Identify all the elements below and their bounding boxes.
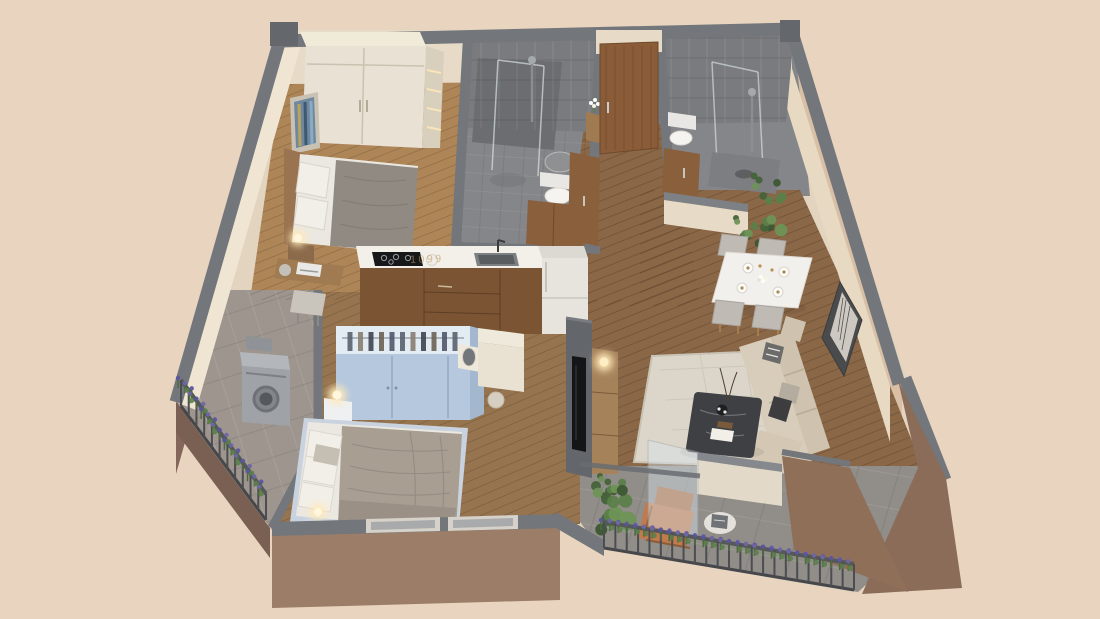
wardrobe-top bbox=[300, 32, 426, 46]
desk-chair bbox=[290, 290, 326, 316]
room-kitchen: 1099 bbox=[356, 240, 588, 334]
shower-drain bbox=[735, 170, 753, 179]
front-exterior-wall-face bbox=[272, 528, 560, 608]
table-lamp bbox=[294, 234, 302, 242]
pillow bbox=[294, 196, 328, 230]
bottle bbox=[770, 268, 773, 271]
toilet bbox=[670, 131, 692, 145]
pillow bbox=[296, 162, 330, 198]
vanity bbox=[478, 342, 524, 392]
toilet bbox=[545, 188, 571, 204]
shower-drain-area bbox=[490, 173, 526, 187]
dining-chair bbox=[752, 305, 784, 330]
vanity-stool bbox=[488, 392, 504, 408]
bathroom2-tile-wall bbox=[658, 34, 794, 124]
entrance-door bbox=[600, 42, 658, 154]
arch-mirror bbox=[463, 348, 476, 366]
corner-column bbox=[780, 20, 800, 42]
storage-box bbox=[711, 514, 728, 529]
tv bbox=[572, 356, 586, 452]
corner-column bbox=[270, 22, 298, 46]
blue-wardrobe bbox=[336, 354, 470, 420]
drawer-handle bbox=[438, 286, 452, 287]
sphere-lamp bbox=[333, 391, 342, 400]
room-entrance bbox=[596, 30, 662, 154]
apartment-3d-floorplan: 1099 bbox=[0, 0, 1100, 619]
single-bed-duvet bbox=[330, 160, 418, 252]
counter-marking: 1099 bbox=[410, 254, 444, 266]
glass-door bbox=[648, 440, 698, 540]
dining-chair bbox=[712, 300, 744, 326]
wood-vanity bbox=[662, 148, 700, 198]
bottle bbox=[758, 264, 761, 267]
fridge-top bbox=[538, 246, 588, 258]
console-lamp bbox=[600, 358, 609, 367]
floorplan-stage: 1099 bbox=[0, 0, 1100, 619]
shower-head bbox=[748, 88, 756, 96]
sphere-lamp bbox=[314, 508, 322, 516]
shower-head bbox=[528, 56, 536, 64]
glass-terrarium bbox=[279, 264, 291, 276]
